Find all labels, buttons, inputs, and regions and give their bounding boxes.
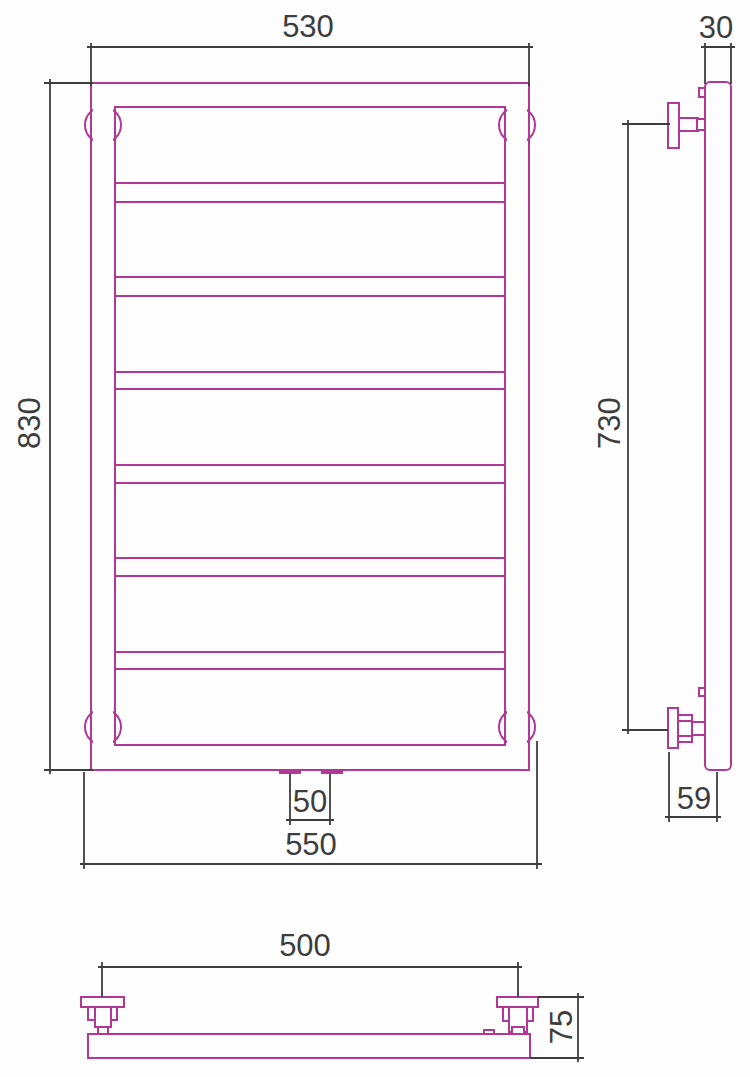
connection-stub-right <box>321 769 343 774</box>
front-view <box>85 83 535 774</box>
left-tube-mask <box>93 84 113 769</box>
side-rail-profile <box>705 82 731 770</box>
dim-side-tube-width: 30 <box>699 10 735 84</box>
dimension-value: 75 <box>544 1010 579 1044</box>
dim-front-overall-height: 830 <box>12 79 93 774</box>
side-view <box>668 82 731 770</box>
top-view-left-tab <box>88 1007 95 1020</box>
dim-front-overall-width: 530 <box>87 9 533 86</box>
dimension-value: 50 <box>293 784 327 819</box>
top-bracket-connector <box>697 119 705 130</box>
top-view-rail-bar <box>88 1034 530 1058</box>
dimension-value: 550 <box>285 827 337 862</box>
top-bracket-stem <box>679 118 698 131</box>
dim-top-bracket-span: 500 <box>98 928 522 997</box>
connection-stub-left <box>279 769 301 774</box>
bottom-bracket-nut <box>678 715 692 742</box>
dimension-value: 500 <box>279 928 331 963</box>
frame-outer-edge <box>91 83 529 770</box>
dim-connection-spacing: 50 <box>286 774 334 825</box>
drawing-svg: 530 30 830 730 50 <box>0 0 750 1077</box>
dimension-value: 30 <box>699 10 733 45</box>
dimensions: 530 30 830 730 50 <box>12 9 735 1062</box>
dim-side-bracket-span: 730 <box>592 120 670 734</box>
dimension-value: 830 <box>12 397 47 449</box>
bottom-bracket-stem <box>692 722 706 735</box>
top-view-right-flange <box>497 997 538 1007</box>
top-view <box>81 997 538 1058</box>
top-view-left-flange <box>81 997 124 1007</box>
dimension-value: 59 <box>677 781 711 816</box>
top-bracket-flange <box>668 103 679 148</box>
dimension-value: 730 <box>592 397 627 449</box>
top-view-left-stem <box>95 1007 111 1027</box>
dimension-value: 530 <box>282 9 334 44</box>
bottom-bracket-flange <box>668 708 678 748</box>
right-tube-mask <box>507 84 527 769</box>
technical-drawing-canvas: 530 30 830 730 50 <box>0 0 750 1077</box>
